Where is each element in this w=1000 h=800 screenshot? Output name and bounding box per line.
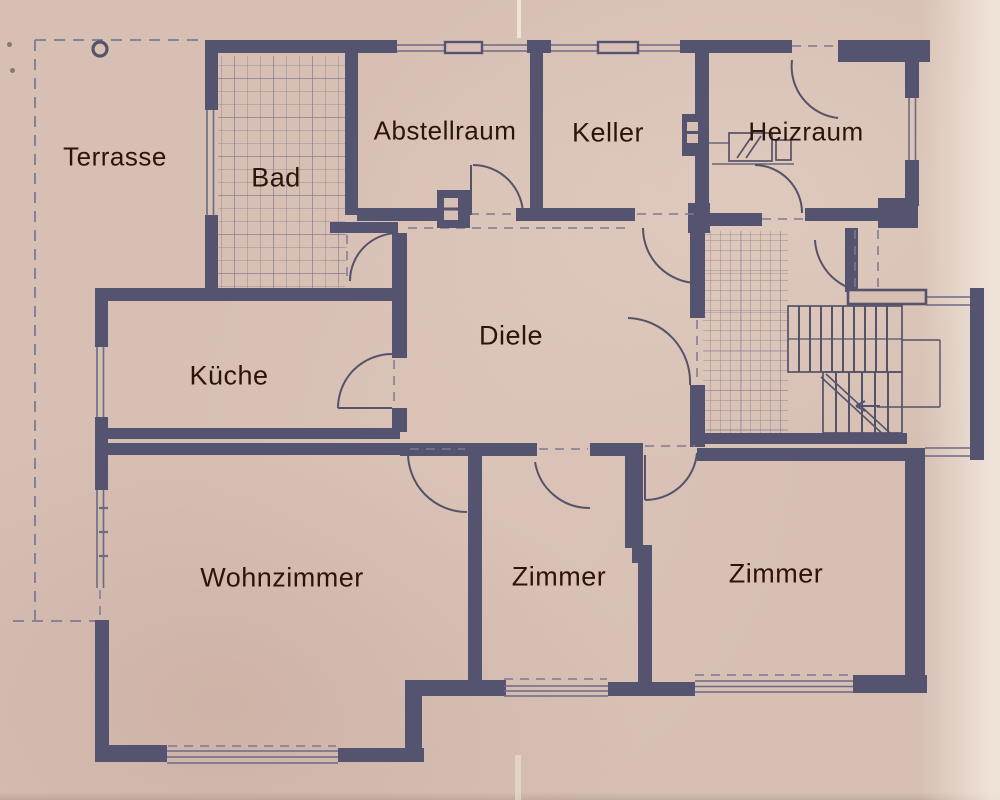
room-label-diele: Diele bbox=[479, 321, 543, 352]
door-hall-entrance bbox=[815, 240, 926, 304]
paper-speck bbox=[10, 68, 15, 73]
terrace-outline bbox=[13, 40, 205, 621]
door-arc-zimmer1 bbox=[535, 462, 590, 508]
door-zimmer2 bbox=[645, 453, 697, 500]
terrace-marker-circle-icon bbox=[93, 42, 107, 56]
chimney-flue-icon bbox=[437, 190, 470, 228]
chimney-flue-icon bbox=[682, 114, 704, 156]
door-kueche bbox=[338, 354, 392, 408]
room-label-zimmer-1: Zimmer bbox=[512, 562, 606, 593]
staircase bbox=[788, 306, 940, 437]
door-arc-keller bbox=[643, 228, 698, 283]
door-arc-wohnzimmer bbox=[408, 452, 467, 512]
door-arc-heizraum-north bbox=[792, 60, 838, 118]
paper-speck bbox=[7, 42, 12, 47]
paper-crease bbox=[517, 0, 521, 38]
door-arc-heizraum-south bbox=[755, 165, 802, 213]
room-label-heizraum: Heizraum bbox=[748, 117, 863, 148]
room-label-bad: Bad bbox=[251, 163, 301, 194]
room-label-abstellraum: Abstellraum bbox=[374, 116, 517, 147]
door-arc-bad bbox=[350, 233, 398, 281]
room-label-zimmer-2: Zimmer bbox=[729, 559, 823, 590]
hall-tile-floor bbox=[703, 231, 788, 433]
room-label-kueche: Küche bbox=[189, 361, 268, 392]
door-arc-diele-east bbox=[628, 318, 690, 385]
room-label-keller: Keller bbox=[572, 118, 644, 149]
room-label-terrasse: Terrasse bbox=[63, 142, 167, 173]
floor-plan: Terrasse Bad Abstellraum Keller Heizraum… bbox=[0, 0, 1000, 800]
paper-crease bbox=[515, 755, 521, 800]
stair-direction-arrow-icon bbox=[856, 401, 880, 411]
room-label-wohnzimmer: Wohnzimmer bbox=[200, 563, 364, 594]
door-abstellraum bbox=[471, 165, 523, 215]
